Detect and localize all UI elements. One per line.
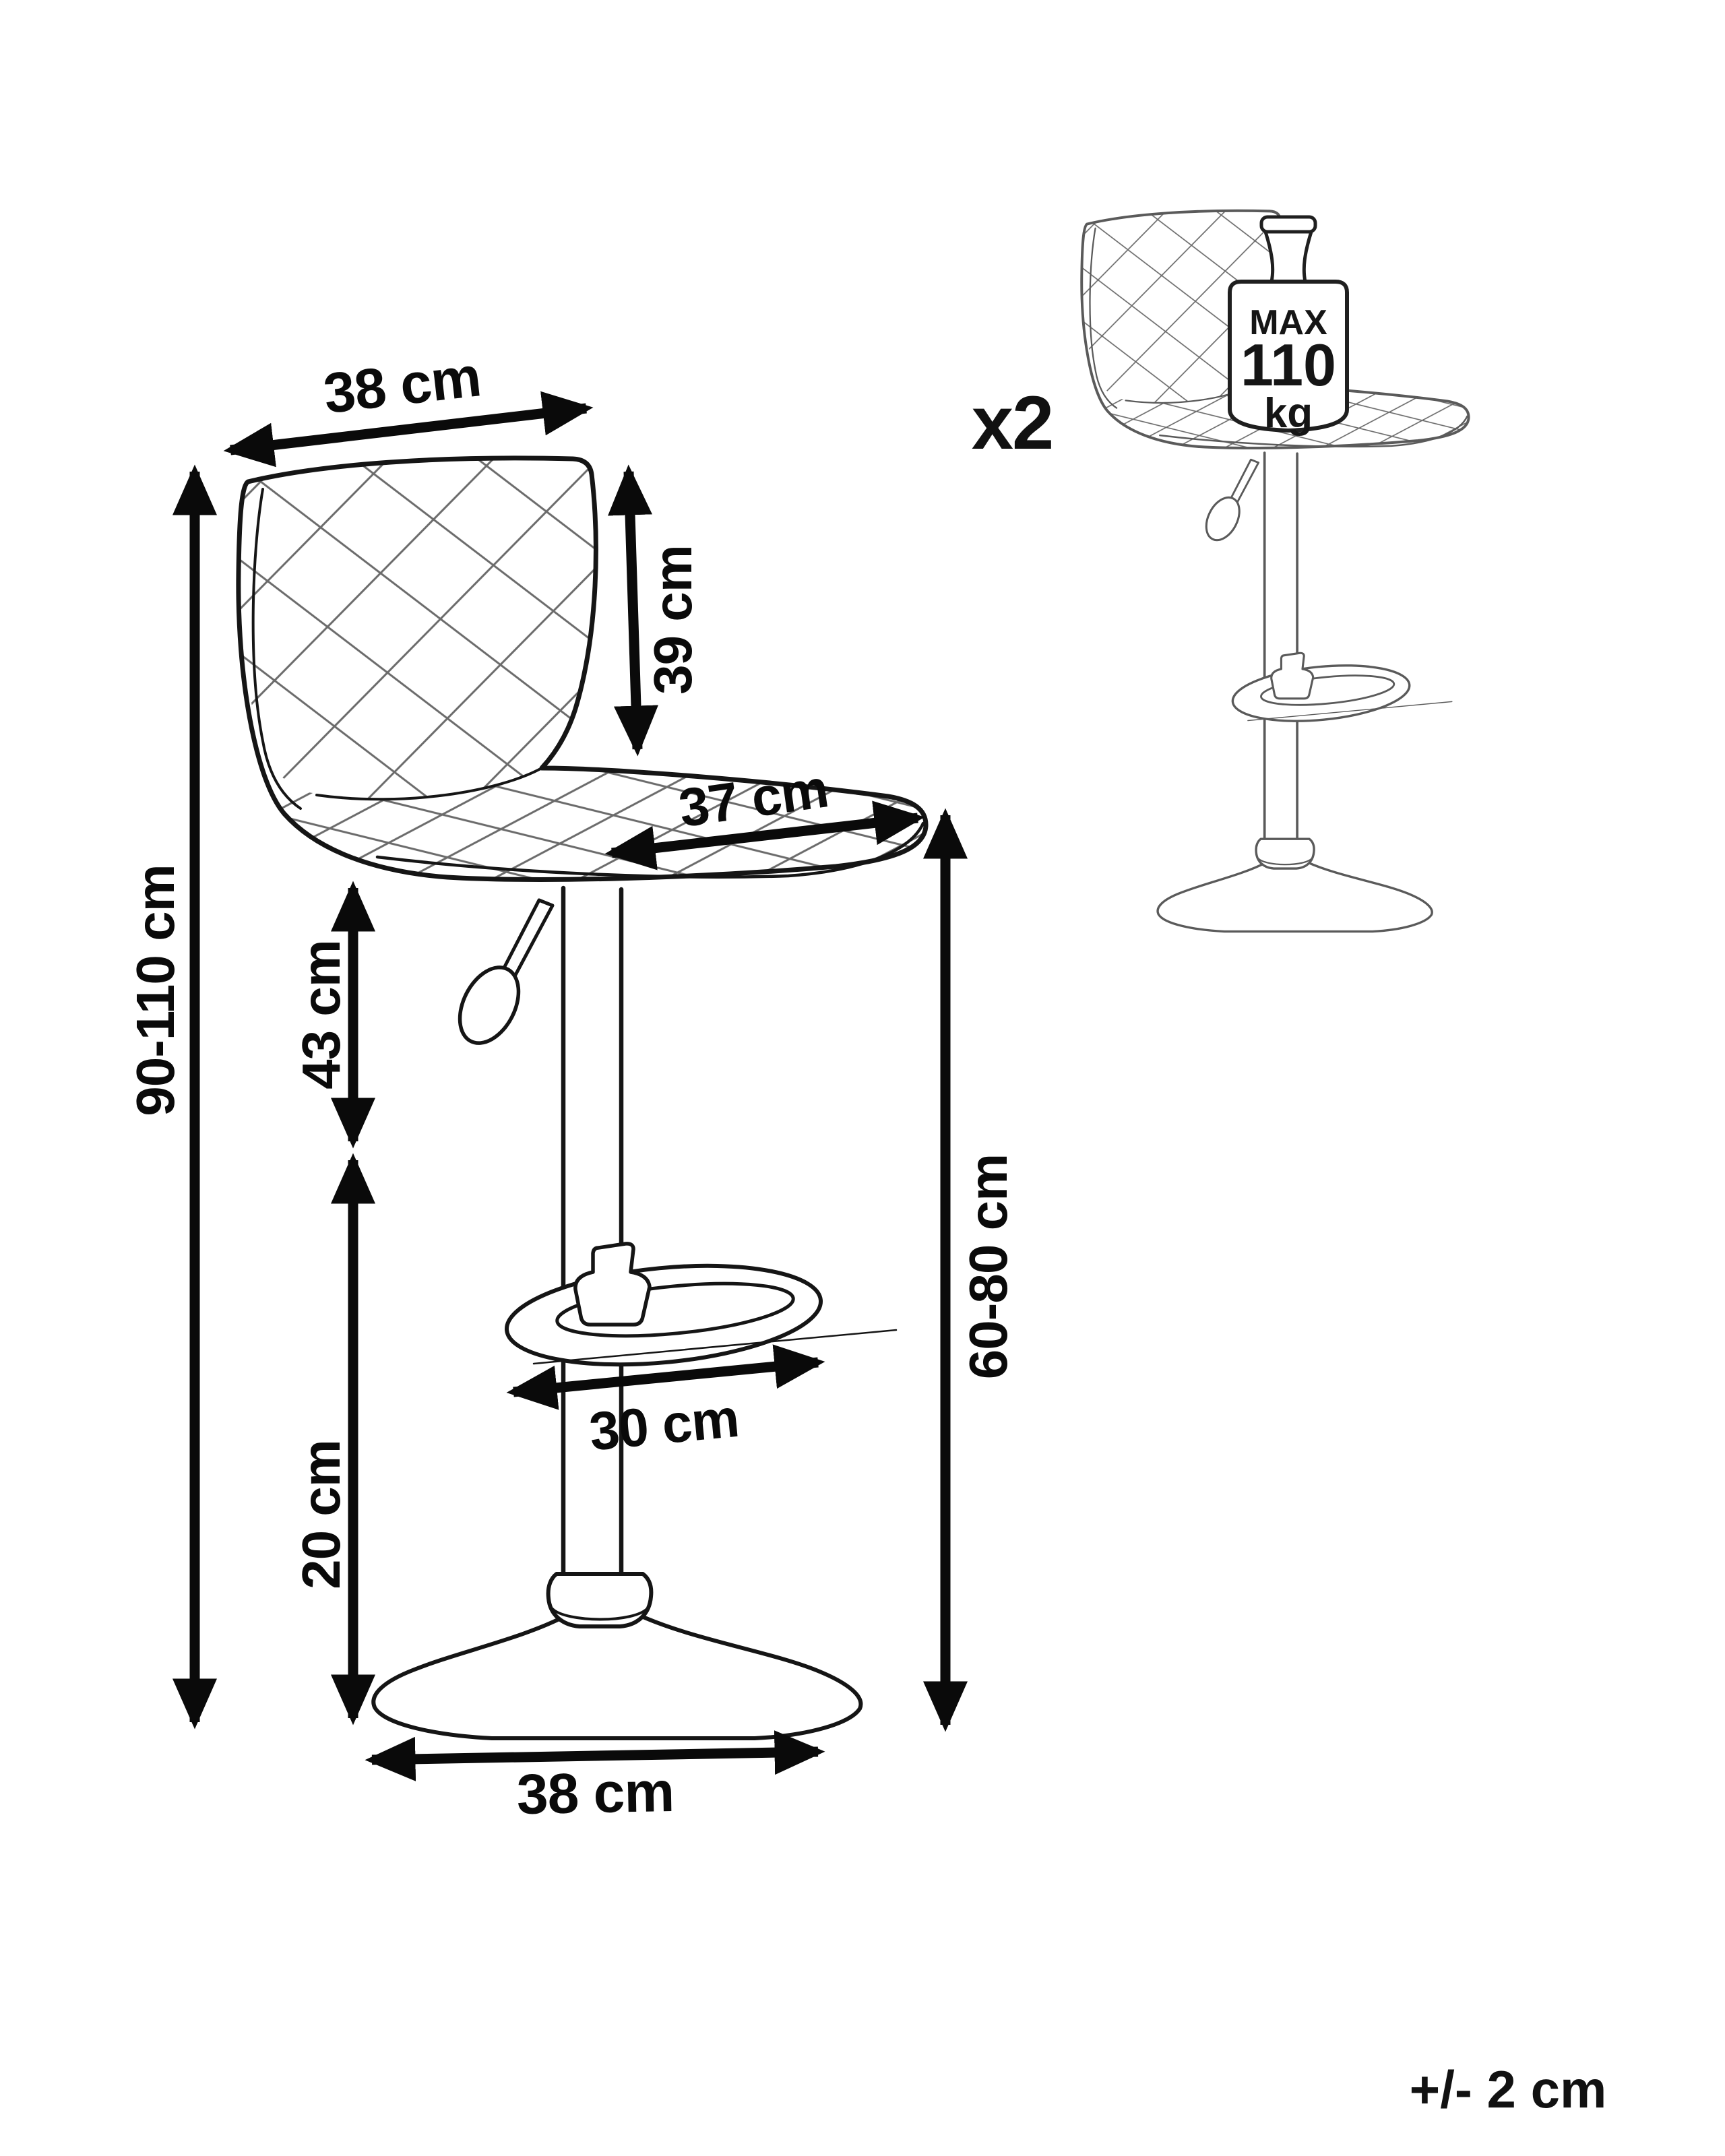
dim-label-seat-height: 60-80 cm xyxy=(958,1154,1018,1379)
quantity-label: x2 xyxy=(972,381,1053,465)
dim-label-base-width: 38 cm xyxy=(516,1760,675,1826)
dim-label-gas-lift-column: 43 cm xyxy=(291,940,351,1089)
weight-handle-cap xyxy=(1261,217,1315,232)
dim-label-footrest-width: 30 cm xyxy=(587,1388,741,1462)
tolerance-note: +/- 2 cm xyxy=(1410,2060,1607,2119)
dim-label-total-height: 90-110 cm xyxy=(125,864,185,1116)
max-weight-value: 110 xyxy=(1241,331,1336,398)
dim-label-backrest-width: 38 cm xyxy=(321,344,484,425)
weight-handle-neck xyxy=(1265,232,1311,282)
dimension-diagram-page: MAX 110 kg x2 38 cm 39 cm 37 cm 90-110 c… xyxy=(0,0,1725,2156)
max-weight-unit: kg xyxy=(1264,390,1313,437)
dim-arrow-backrest-height xyxy=(629,472,637,749)
dim-arrow-footrest-width xyxy=(513,1362,818,1392)
dim-label-backrest-height: 39 cm xyxy=(643,545,703,695)
dim-label-lower-column: 20 cm xyxy=(291,1440,351,1589)
dim-arrow-base-width xyxy=(372,1752,818,1760)
bar-stool-dimension-diagram: MAX 110 kg x2 38 cm 39 cm 37 cm 90-110 c… xyxy=(0,0,1725,2156)
